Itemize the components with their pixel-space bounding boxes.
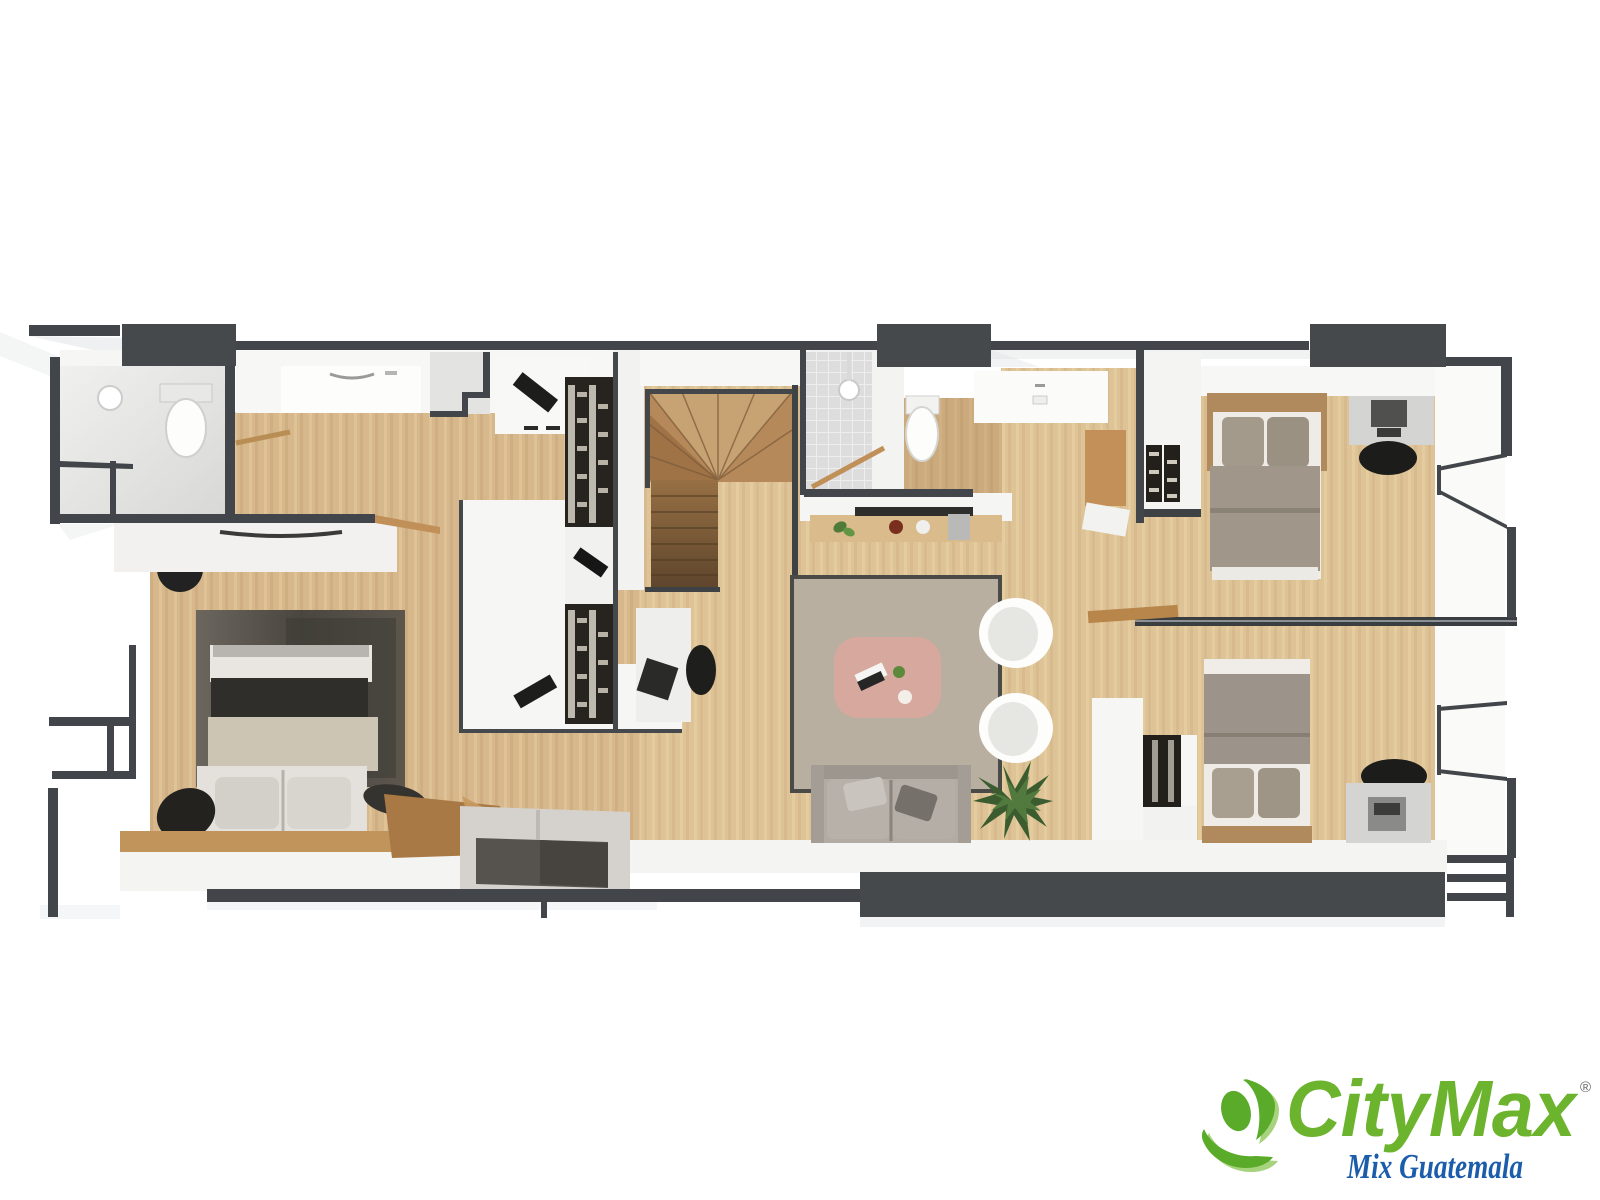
svg-text:®: ® bbox=[1580, 1079, 1591, 1096]
svg-text:Mix Guatemala: Mix Guatemala bbox=[1346, 1147, 1523, 1186]
svg-text:CityMax: CityMax bbox=[1286, 1064, 1579, 1153]
